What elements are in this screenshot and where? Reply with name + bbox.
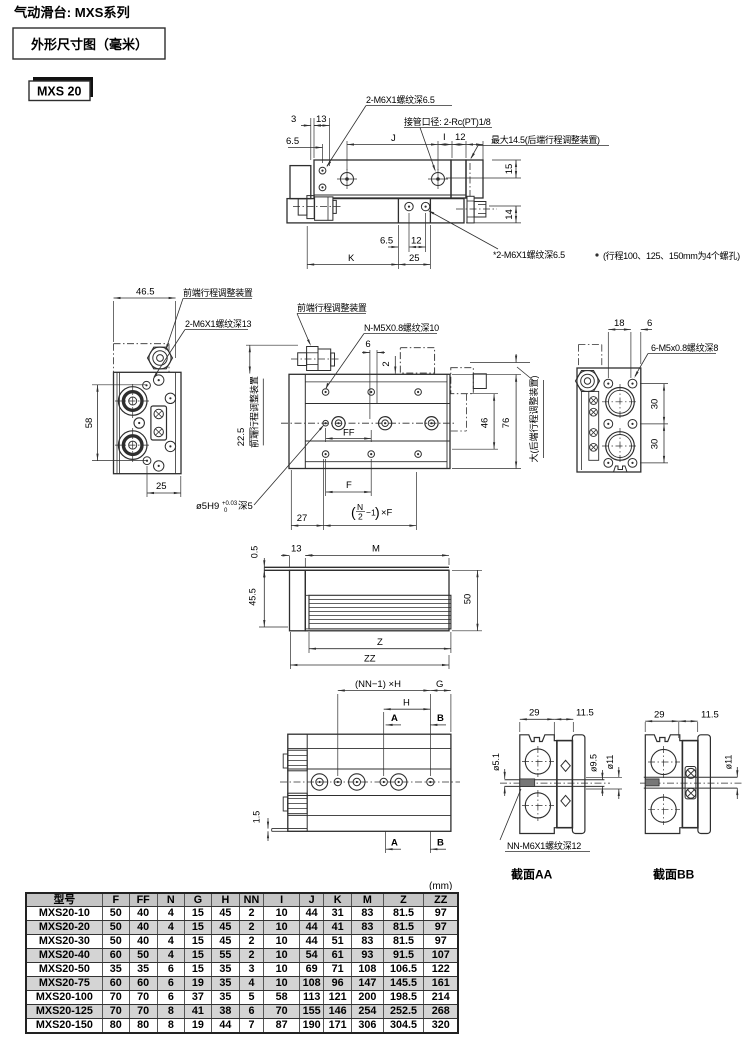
svg-text:2-M6X1螺纹深13: 2-M6X1螺纹深13 (185, 318, 252, 329)
svg-text:3: 3 (291, 114, 296, 125)
svg-text:G: G (436, 679, 443, 690)
svg-text:M: M (372, 544, 380, 555)
svg-text:ø11: ø11 (724, 755, 734, 770)
svg-text:前端行程调整装置: 前端行程调整装置 (183, 287, 253, 298)
svg-text:6.5: 6.5 (286, 136, 299, 147)
svg-text:前端行程调整装置: 前端行程调整装置 (297, 302, 367, 313)
svg-text:J: J (391, 133, 396, 144)
svg-text:NN-M6X1螺纹深12: NN-M6X1螺纹深12 (507, 840, 581, 851)
svg-text:ø11: ø11 (605, 755, 615, 770)
svg-text:12: 12 (455, 132, 466, 143)
svg-text:H: H (403, 698, 410, 709)
svg-text:): ) (375, 504, 380, 520)
svg-text:6.5: 6.5 (380, 236, 393, 247)
svg-text:FF: FF (343, 428, 355, 439)
svg-text:F: F (346, 480, 352, 491)
svg-text:25: 25 (409, 253, 420, 264)
svg-text:外形尺寸图（毫米）: 外形尺寸图（毫米） (30, 37, 148, 52)
svg-text:13: 13 (291, 544, 302, 555)
svg-text:50: 50 (463, 594, 474, 605)
svg-text:25: 25 (156, 481, 167, 492)
svg-text:ø5.1: ø5.1 (491, 753, 501, 771)
svg-text:前端行程调整装置: 前端行程调整装置 (249, 376, 260, 448)
svg-text:29: 29 (654, 710, 665, 721)
svg-text:接管口径: 2-Rc(PT)1/8: 接管口径: 2-Rc(PT)1/8 (404, 116, 491, 127)
svg-text:2: 2 (381, 361, 392, 366)
svg-text:(mm): (mm) (429, 881, 452, 890)
svg-text:15: 15 (504, 164, 515, 175)
svg-text:11.5: 11.5 (701, 710, 719, 721)
svg-text:最大14.5(后端行程调整装置): 最大14.5(后端行程调整装置) (491, 134, 600, 145)
svg-text:ø9.5: ø9.5 (589, 754, 599, 772)
svg-text:(NN−1) ×H: (NN−1) ×H (355, 679, 401, 690)
svg-text:1.5: 1.5 (252, 811, 262, 824)
svg-text:0.5: 0.5 (250, 546, 260, 559)
svg-text:N-M5X0.8螺纹深10: N-M5X0.8螺纹深10 (364, 322, 439, 333)
svg-text:27: 27 (297, 513, 308, 524)
svg-text:×F: ×F (381, 508, 393, 519)
svg-text:76: 76 (501, 418, 512, 429)
svg-text:B: B (437, 713, 444, 724)
svg-text:Z: Z (377, 637, 383, 648)
svg-text:46: 46 (480, 418, 491, 429)
svg-text:46.5: 46.5 (136, 287, 155, 298)
svg-text:11.5: 11.5 (576, 708, 594, 719)
svg-text:截面AA: 截面AA (511, 867, 553, 882)
svg-text:6-M5x0.8螺纹深8: 6-M5x0.8螺纹深8 (651, 342, 718, 353)
svg-text:22.5: 22.5 (236, 428, 247, 447)
svg-text:45.5: 45.5 (248, 588, 258, 606)
svg-text:A: A (391, 713, 398, 724)
svg-text:13: 13 (316, 114, 327, 125)
svg-text:ø5H9: ø5H9 (196, 501, 219, 512)
svg-text:30: 30 (650, 399, 661, 410)
svg-text:+0.03: +0.03 (222, 501, 238, 507)
svg-text:深5: 深5 (238, 501, 253, 512)
svg-text:ZZ: ZZ (364, 654, 376, 665)
svg-text:MXS 20: MXS 20 (37, 85, 82, 99)
svg-text:截面BB: 截面BB (653, 867, 695, 882)
svg-text:2: 2 (358, 512, 363, 522)
svg-text:大(后端行程调整装置): 大(后端行程调整装置) (528, 376, 539, 463)
svg-text:N: N (357, 502, 363, 512)
svg-text:29: 29 (529, 708, 540, 719)
svg-text:*2-M6X1螺纹深6.5: *2-M6X1螺纹深6.5 (493, 249, 565, 260)
svg-text:0: 0 (224, 508, 228, 514)
svg-text:30: 30 (650, 439, 661, 450)
svg-text:6: 6 (647, 318, 652, 329)
svg-text:12: 12 (411, 236, 422, 247)
svg-text:气动滑台: MXS系列: 气动滑台: MXS系列 (13, 4, 130, 20)
svg-text:I: I (443, 132, 446, 143)
svg-text:14: 14 (504, 209, 515, 220)
svg-text:2-M6X1螺纹深6.5: 2-M6X1螺纹深6.5 (366, 94, 435, 105)
svg-text:58: 58 (84, 418, 95, 429)
svg-text:6: 6 (365, 339, 370, 350)
svg-text:(行程100、125、150mm为4个螺孔): (行程100、125、150mm为4个螺孔) (603, 250, 740, 261)
svg-text:(: ( (351, 504, 356, 520)
svg-text:A: A (391, 838, 398, 849)
svg-text:K: K (348, 253, 355, 264)
svg-text:B: B (437, 838, 444, 849)
svg-text:18: 18 (614, 318, 625, 329)
